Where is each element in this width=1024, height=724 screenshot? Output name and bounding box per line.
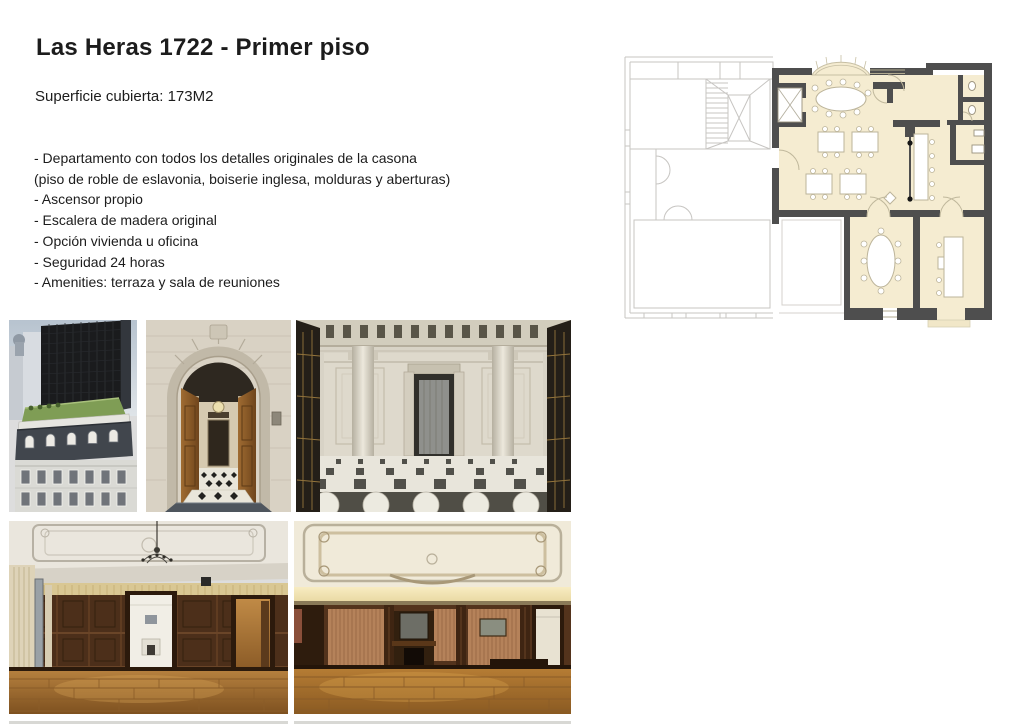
photo-building-exterior-aerial — [9, 320, 137, 512]
marble-hall-illustration — [296, 320, 571, 512]
brochure-page: Las Heras 1722 - Primer piso Superficie … — [0, 0, 1024, 724]
feature-line: (piso de roble de eslavonia, boiserie in… — [34, 169, 450, 190]
photo-marble-hall — [296, 320, 571, 512]
surface-subtitle: Superficie cubierta: 173M2 — [35, 88, 213, 105]
photo-ornate-ceiling-salon — [294, 521, 571, 714]
feature-line: - Departamento con todos los detalles or… — [34, 148, 450, 169]
feature-line: - Opción vivienda u oficina — [34, 231, 450, 252]
ornate-salon-illustration — [294, 521, 571, 714]
entrance-arch-illustration — [146, 320, 291, 512]
floor-plan — [622, 52, 998, 336]
feature-line: - Ascensor propio — [34, 189, 450, 210]
feature-line: - Escalera de madera original — [34, 210, 450, 231]
feature-line: - Seguridad 24 horas — [34, 252, 450, 273]
page-title: Las Heras 1722 - Primer piso — [36, 34, 370, 62]
wood-salon-illustration — [9, 521, 288, 714]
building-aerial-illustration — [9, 320, 137, 512]
feature-list: - Departamento con todos los detalles or… — [34, 148, 450, 293]
floor-plan-drawing — [622, 52, 998, 336]
feature-line: - Amenities: terraza y sala de reuniones — [34, 272, 450, 293]
photo-wood-paneled-salon — [9, 521, 288, 714]
photo-entrance-arch — [146, 320, 291, 512]
